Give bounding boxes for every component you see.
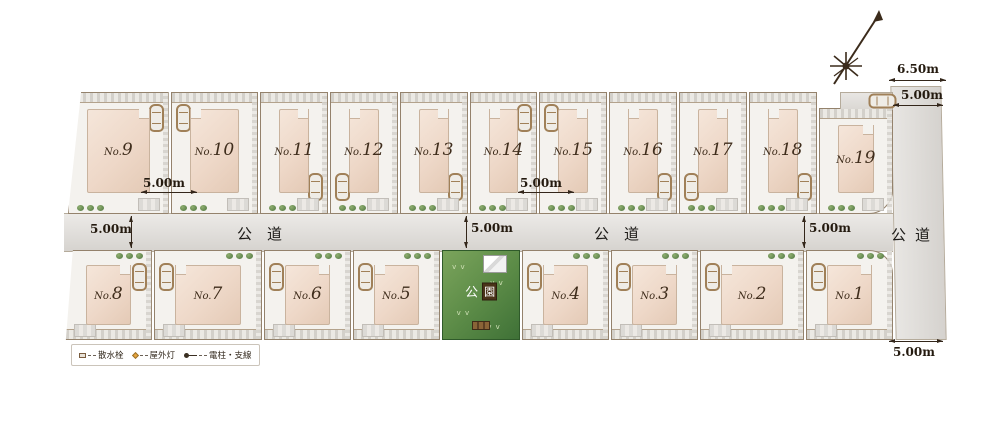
dimension-road-center: 5.00m — [471, 221, 513, 235]
road-label: 公道 — [237, 223, 297, 244]
pavement-tiles — [815, 324, 837, 337]
shrubs — [180, 205, 207, 211]
car-icon — [335, 173, 350, 201]
lot-no-11: No.11 — [260, 92, 328, 214]
side-hatch-strip — [692, 251, 697, 339]
house-footprint: No.13 — [419, 109, 449, 193]
pavement-tiles — [709, 324, 731, 337]
lot-number-label: No.1 — [835, 284, 864, 304]
back-hatch-strip — [471, 93, 537, 103]
park: 公園 — [442, 250, 520, 340]
pavement-tiles — [531, 324, 553, 337]
shrubs — [768, 253, 795, 259]
road-label: 公道 — [891, 224, 939, 245]
lot-number-label: No.8 — [94, 284, 123, 304]
lot-number-label: No.5 — [382, 284, 411, 304]
lot-number-label: No.9 — [104, 140, 133, 160]
lot-number-label: No.2 — [738, 284, 767, 304]
lot-no-3: No.3 — [611, 250, 698, 340]
side-hatch-strip — [887, 109, 892, 213]
house-footprint: No.12 — [349, 109, 379, 193]
shrubs — [77, 205, 104, 211]
dimension-arrow — [804, 216, 805, 248]
pavement-tiles — [367, 198, 389, 211]
lot-number-label: No.14 — [484, 140, 523, 160]
back-hatch-strip — [401, 93, 467, 103]
dimension-arrow — [141, 192, 197, 193]
shrubs — [339, 205, 366, 211]
car-icon — [811, 263, 826, 291]
outdoor-light-icon — [131, 351, 138, 358]
lot-number-label: No.4 — [551, 284, 580, 304]
house-footprint: No.9 — [87, 109, 150, 193]
legend-item: 散水栓 — [79, 349, 124, 361]
house-footprint: No.2 — [721, 265, 783, 325]
pavement-tiles — [163, 324, 185, 337]
legend-label: 屋外灯 — [150, 349, 176, 361]
pavement-tiles — [506, 198, 528, 211]
lot-no-14: No.14 — [470, 92, 538, 214]
lot-no-18: No.18 — [749, 92, 817, 214]
back-hatch-strip — [261, 93, 327, 103]
park-bench — [472, 321, 490, 330]
car-icon — [269, 263, 284, 291]
shrubs — [548, 205, 575, 211]
park-shelter — [483, 255, 507, 273]
pavement-tiles — [646, 198, 668, 211]
house-footprint: No.15 — [558, 109, 588, 193]
legend: 散水栓 屋外灯 電柱・支線 — [71, 344, 260, 366]
car-icon — [527, 263, 542, 291]
house-footprint: No.8 — [86, 265, 131, 325]
lot-no-15: No.15 — [539, 92, 607, 214]
legend-item: 電柱・支線 — [184, 349, 252, 361]
house-footprint: No.16 — [628, 109, 658, 193]
lot-number-label: No.13 — [414, 140, 453, 160]
grass-mark — [452, 263, 466, 271]
back-hatch-strip — [172, 93, 258, 103]
lot-no-6: No.6 — [264, 250, 351, 340]
shrubs — [116, 253, 143, 259]
shrubs — [662, 253, 689, 259]
shrubs — [479, 205, 506, 211]
car-icon — [159, 263, 174, 291]
dimension-arrow — [889, 80, 946, 81]
shrubs — [758, 205, 785, 211]
back-hatch-strip — [69, 93, 168, 103]
house-footprint: No.18 — [768, 109, 798, 193]
grass-mark — [457, 309, 471, 317]
lot-number-label: No.19 — [836, 148, 875, 168]
side-hatch-strip — [345, 251, 350, 339]
lot-number-label: No.12 — [344, 140, 383, 160]
pavement-tiles — [227, 198, 249, 211]
car-icon — [132, 263, 147, 291]
legend-label: 電柱・支線 — [209, 349, 252, 361]
lot-number-label: No.3 — [640, 284, 669, 304]
shrubs — [404, 253, 431, 259]
side-hatch-strip — [741, 93, 746, 213]
lot-no-13: No.13 — [400, 92, 468, 214]
lot-no-19: No.19 — [819, 108, 893, 214]
dimension-driveway-west: 5.00m — [143, 176, 185, 190]
side-hatch-strip — [887, 251, 892, 339]
house-footprint: No.7 — [175, 265, 241, 325]
lot-no-4: No.4 — [522, 250, 609, 340]
side-hatch-strip — [434, 251, 439, 339]
shrubs — [269, 205, 296, 211]
pavement-tiles — [362, 324, 384, 337]
house-footprint: No.14 — [489, 109, 519, 193]
bottom-lot-row: No.8 No.7 No.6 No.5 公園 — [65, 250, 893, 340]
pavement-tiles — [786, 198, 808, 211]
lot-number-label: No.10 — [195, 140, 234, 160]
car-icon — [684, 173, 699, 201]
house-footprint: No.6 — [285, 265, 330, 325]
side-hatch-strip — [392, 93, 397, 213]
pavement-tiles — [576, 198, 598, 211]
side-hatch-strip — [798, 251, 803, 339]
dimension-top-width: 6.50m — [897, 62, 939, 76]
shrubs — [409, 205, 436, 211]
lot-no-10: No.10 — [171, 92, 259, 214]
shrubs — [618, 205, 645, 211]
car-icon — [308, 173, 323, 201]
house-footprint: No.19 — [838, 125, 874, 193]
legend-connector — [140, 355, 148, 356]
lot-number-label: No.15 — [554, 140, 593, 160]
car-icon — [705, 263, 720, 291]
legend-connector — [88, 355, 96, 356]
side-hatch-strip — [256, 251, 261, 339]
back-hatch-strip — [331, 93, 397, 103]
utility-pole-icon — [184, 353, 197, 358]
lot-number-label: No.11 — [274, 140, 313, 160]
lot-number-label: No.16 — [623, 140, 662, 160]
side-hatch-strip — [146, 251, 151, 339]
pavement-tiles — [297, 198, 319, 211]
car-icon — [149, 104, 164, 132]
house-footprint: No.17 — [698, 109, 728, 193]
site-plan-image: 公道 公道 公道 No.9 No.10 No.11 — [0, 0, 1000, 429]
lot-no-16: No.16 — [609, 92, 677, 214]
sprinkler-icon — [79, 353, 86, 358]
lot-number-label: No.18 — [763, 140, 802, 160]
back-hatch-strip — [750, 93, 816, 103]
lot-no-8: No.8 — [65, 250, 152, 340]
lot-number-label: No.7 — [194, 284, 223, 304]
shrubs — [688, 205, 715, 211]
road-label: 公道 — [594, 223, 654, 244]
dimension-road-left: 5.00m — [90, 222, 132, 236]
car-icon — [616, 263, 631, 291]
car-icon — [448, 173, 463, 201]
dimension-arrow — [518, 192, 574, 193]
lot-no-17: No.17 — [679, 92, 747, 214]
back-hatch-strip — [540, 93, 606, 103]
lot-no-7: No.7 — [154, 250, 262, 340]
shrubs — [226, 253, 253, 259]
car-icon — [176, 104, 191, 132]
dimension-arrow — [889, 341, 943, 342]
lot-no-5: No.5 — [353, 250, 440, 340]
car-icon — [544, 104, 559, 132]
side-hatch-strip — [603, 251, 608, 339]
house-footprint: No.5 — [374, 265, 419, 325]
pavement-tiles — [74, 324, 96, 337]
legend-connector — [199, 355, 207, 356]
pavement-tiles — [138, 198, 160, 211]
shrubs — [315, 253, 342, 259]
lot-no-2: No.2 — [700, 250, 804, 340]
right-public-road — [890, 86, 946, 340]
pavement-tiles — [273, 324, 295, 337]
lot-number-label: No.6 — [293, 284, 322, 304]
pavement-tiles — [716, 198, 738, 211]
pavement-tiles — [620, 324, 642, 337]
back-hatch-strip — [680, 93, 746, 103]
house-footprint: No.3 — [632, 265, 677, 325]
park-label: 公園 — [465, 282, 497, 301]
lot-no-9: No.9 — [68, 92, 169, 214]
legend-label: 散水栓 — [98, 349, 124, 361]
lot-no-1: No.1 — [806, 250, 893, 340]
car-icon — [517, 104, 532, 132]
lot-number-label: No.17 — [693, 140, 732, 160]
house-footprint: No.1 — [827, 265, 872, 325]
pavement-tiles — [862, 198, 884, 211]
car-icon — [657, 173, 672, 201]
car-icon — [358, 263, 373, 291]
dimension-road-east: 5.00m — [809, 221, 851, 235]
side-hatch-strip — [601, 93, 606, 213]
house-footprint: No.4 — [543, 265, 588, 325]
lot-no-12: No.12 — [330, 92, 398, 214]
dimension-driveway-east: 5.00m — [520, 176, 562, 190]
dimension-bottom-right: 5.00m — [893, 345, 935, 359]
side-hatch-strip — [531, 93, 536, 213]
car-icon — [797, 173, 812, 201]
dimension-top-parking: 5.00m — [901, 88, 943, 102]
shrubs — [828, 205, 855, 211]
dimension-arrow — [893, 105, 943, 106]
back-hatch-strip — [820, 109, 892, 119]
pavement-tiles — [437, 198, 459, 211]
top-lot-row: No.9 No.10 No.11 No.12 N — [68, 92, 893, 214]
side-hatch-strip — [252, 93, 257, 213]
dimension-arrow — [466, 216, 467, 248]
dimension-arrow — [131, 216, 132, 248]
house-footprint: No.11 — [279, 109, 309, 193]
shrubs — [573, 253, 600, 259]
legend-item: 屋外灯 — [133, 349, 176, 361]
house-footprint: No.10 — [190, 109, 240, 193]
shrubs — [857, 253, 884, 259]
north-arrow-icon — [822, 8, 894, 90]
back-hatch-strip — [610, 93, 676, 103]
